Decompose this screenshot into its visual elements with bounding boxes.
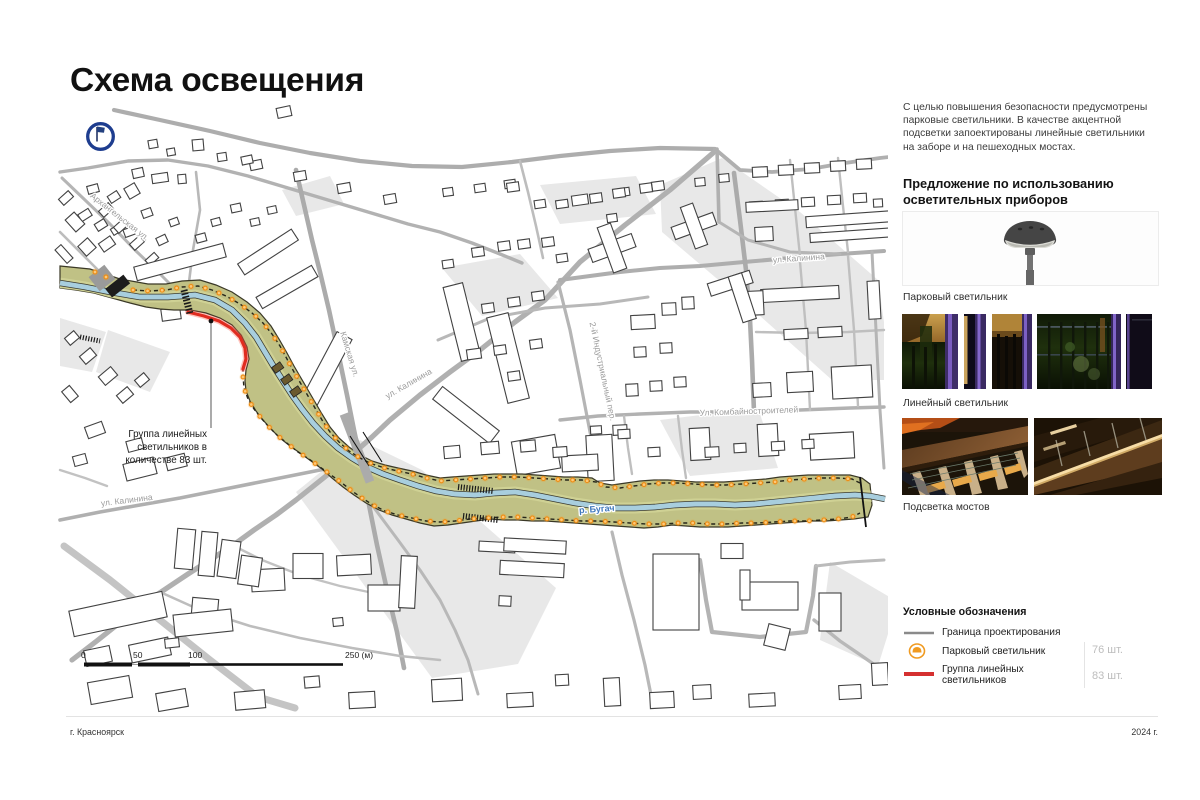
svg-text:Группа линейныхсветильников вк: Группа линейныхсветильников вколичестве … [125, 429, 207, 466]
svg-text:0: 0 [81, 650, 86, 660]
svg-text:100: 100 [188, 650, 202, 660]
svg-text:2-й Индустриальный пер.: 2-й Индустриальный пер. [588, 321, 619, 422]
svg-text:50: 50 [133, 650, 143, 660]
svg-text:ул. Калинина: ул. Калинина [383, 366, 433, 401]
svg-text:250 (м): 250 (м) [345, 650, 373, 660]
svg-text:Ул. Комбайностроителей: Ул. Комбайностроителей [699, 404, 798, 417]
